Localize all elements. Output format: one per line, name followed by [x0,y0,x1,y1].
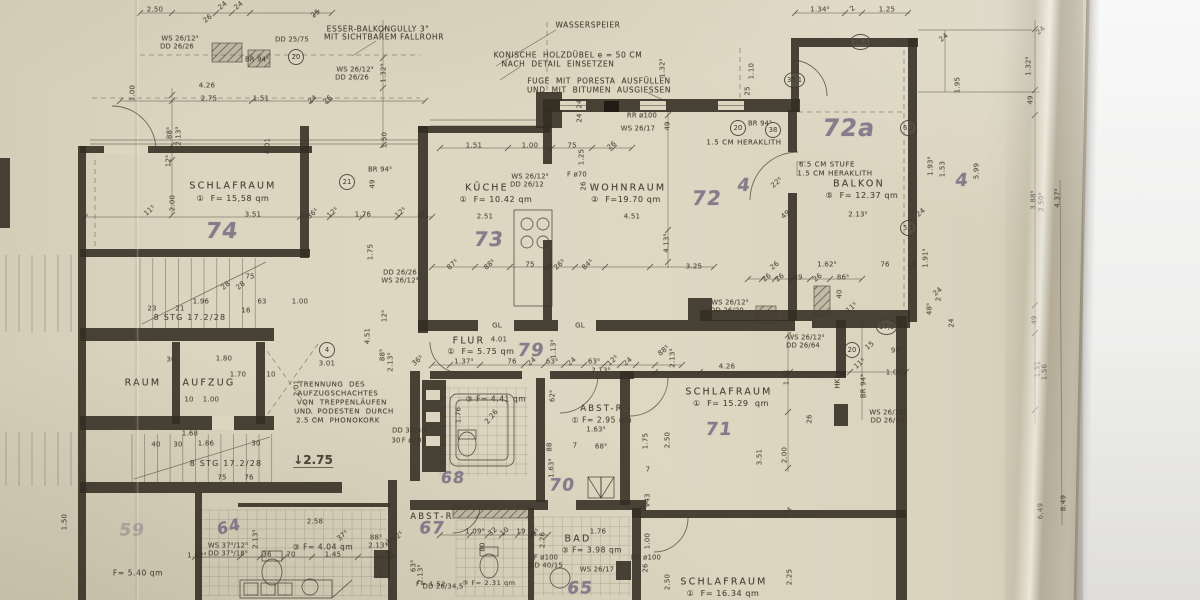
hatched-shafts [212,43,830,518]
floorplan-drawing [0,0,1200,600]
floorplan-photo: Grundriss — photographed hand-drawn Germ… [0,0,1200,600]
blueprint-paper: ESSER-BALKONGULLY 3"MIT SICHTBAREM FALLR… [0,0,1200,600]
